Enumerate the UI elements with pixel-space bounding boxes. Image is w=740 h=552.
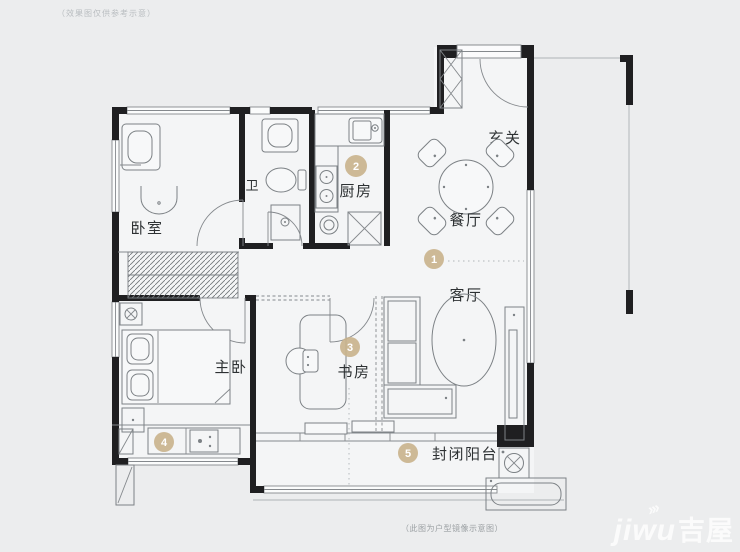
watermark-latin: jiwu	[614, 514, 676, 547]
floorplan-svg: （效果图仅供参考示意）	[0, 0, 740, 552]
top-note: （效果图仅供参考示意）	[57, 8, 156, 18]
watermark-cjk: 吉屋	[678, 516, 734, 546]
bathroom-label: 卫	[245, 178, 258, 193]
marker-3: 3	[340, 337, 360, 357]
master-label: 主卧	[214, 359, 247, 376]
svg-text:2: 2	[353, 161, 359, 173]
study-label: 书房	[337, 364, 370, 381]
sliding-door-panel	[352, 421, 394, 432]
svg-text:3: 3	[347, 342, 353, 354]
pipe-shaft	[116, 465, 134, 505]
toilet-tank	[298, 170, 306, 190]
svg-text:4: 4	[161, 437, 168, 449]
balcony-label: 封闭阳台	[432, 446, 498, 463]
kitchen-label: 厨房	[339, 183, 372, 200]
svg-text:1: 1	[431, 254, 437, 266]
dining-table	[439, 160, 493, 214]
marker-2: 2	[345, 155, 367, 177]
svg-text:5: 5	[405, 448, 411, 460]
watermark: ›››jiwu吉屋	[614, 516, 734, 546]
toilet	[266, 168, 296, 192]
dining-label: 餐厅	[449, 212, 482, 229]
floorplan-canvas: （效果图仅供参考示意）	[0, 0, 740, 552]
sliding-door-panel	[305, 423, 347, 434]
wardrobe	[128, 252, 238, 298]
marker-4: 4	[154, 432, 174, 452]
bottom-caption: （此图为户型镜像示意图）	[401, 523, 503, 533]
bedroom-label: 卧室	[130, 220, 163, 237]
marker-5: 5	[398, 443, 418, 463]
marker-1: 1	[424, 249, 444, 269]
